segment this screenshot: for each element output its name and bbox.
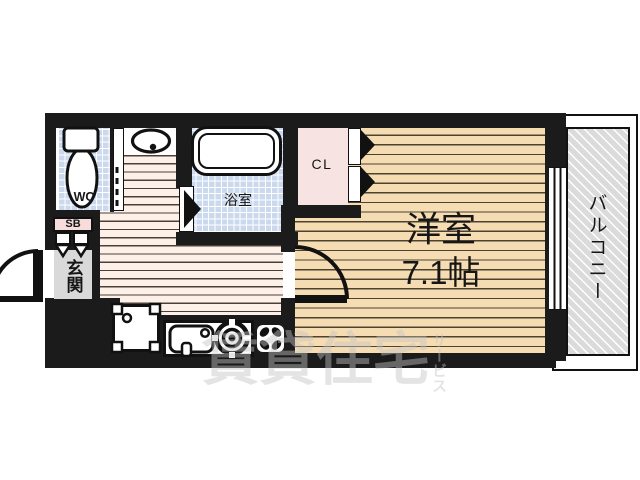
wall-top [45,113,556,128]
wall-bottom-left [45,298,120,368]
shoebox-door-left [55,232,71,245]
washing-machine-pan [112,304,160,352]
bathtub-icon [191,126,282,176]
wall-bottom [281,353,556,368]
floorplan-canvas: WC 浴室 CL 洋室 7.1帖 バルコニー 玄関 SB 賃貸住宅 サービス [0,0,640,480]
wall-hall-room-upper [281,218,295,252]
entrance-door-icon [0,250,43,302]
kitchen-counter [163,320,254,357]
shoebox-label: SB [65,218,80,230]
balcony-label: バルコニー [583,193,610,303]
bathtub-inner [198,133,275,169]
bath-label: 浴室 [224,190,252,210]
ventilation-fan-box [257,325,284,352]
western-room-label: 洋室 [406,202,476,253]
western-room-size-label: 7.1帖 [402,246,481,294]
closet-door-lower [348,166,361,202]
closet-label: CL [312,156,333,172]
wall-below-bath [176,232,298,245]
wall-below-closet [281,205,361,218]
bath-door-panel [179,186,194,232]
shoebox-door-right [73,232,89,245]
wc-folding-door [113,128,124,211]
wc-label: WC [74,190,95,204]
washbasin-icon [133,130,170,152]
wall-bath-left [176,128,192,188]
closet-door-upper [348,128,361,165]
entrance-label: 玄関 [61,259,86,293]
sliding-window [549,167,566,310]
